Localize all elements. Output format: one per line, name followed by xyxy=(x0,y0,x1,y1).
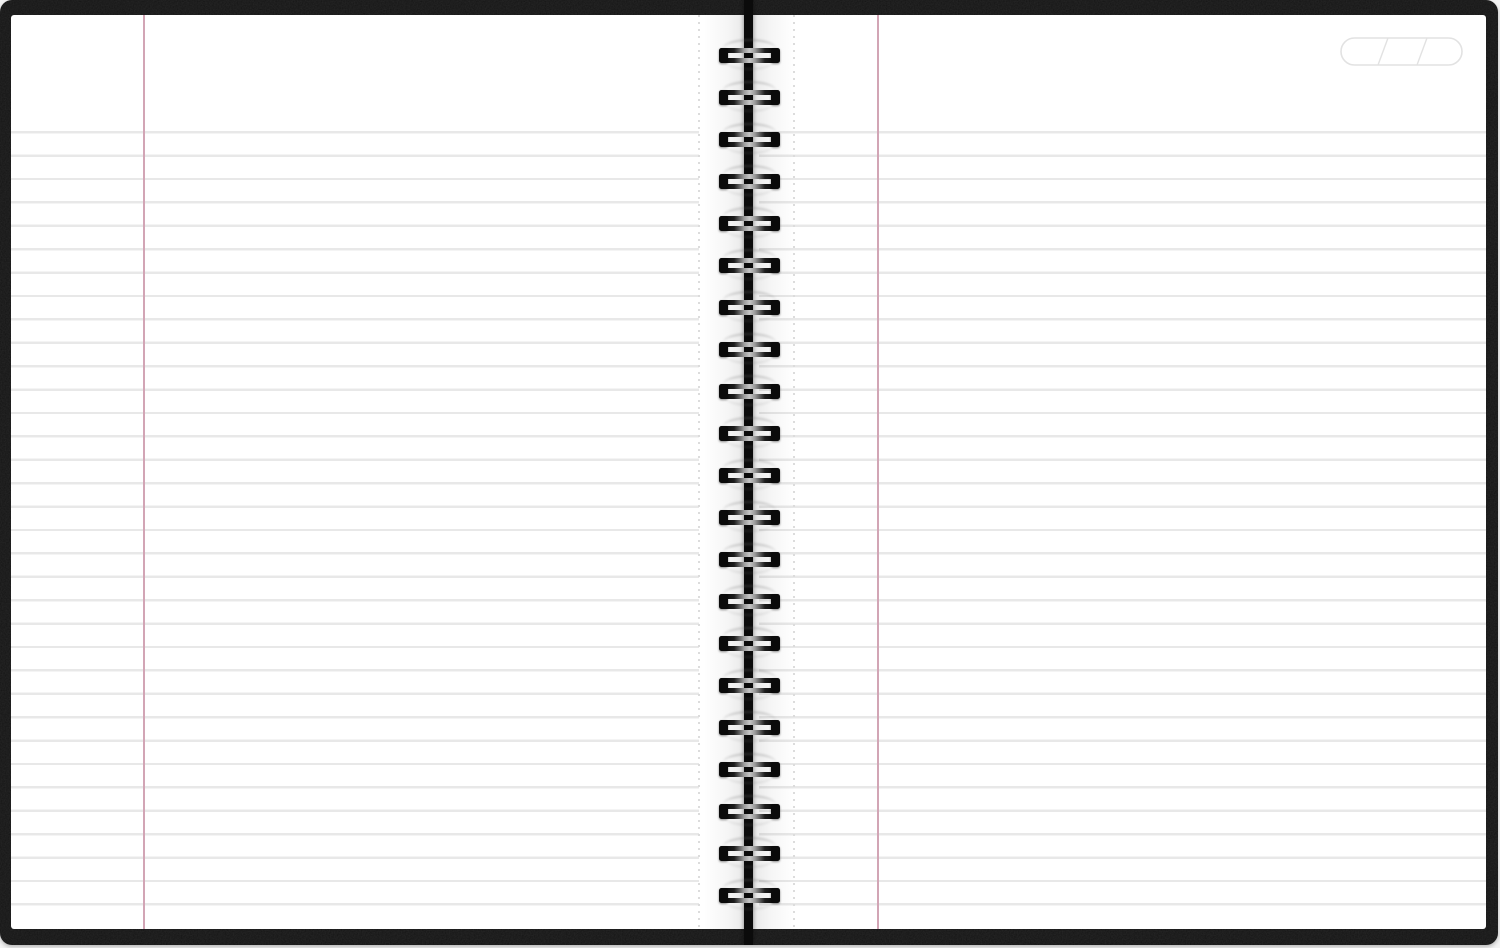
coil-cap-right xyxy=(771,888,780,903)
coil xyxy=(719,846,780,861)
coil-wire-top xyxy=(722,678,777,683)
coil-wire-bottom xyxy=(722,814,777,819)
coil-cap-right xyxy=(771,300,780,315)
coil-cap-left xyxy=(719,174,728,189)
coil-wire-bottom xyxy=(722,898,777,903)
coil-wire-top xyxy=(722,426,777,431)
margin-line-left xyxy=(143,15,145,929)
coil-wire-top xyxy=(722,216,777,221)
coil-cap-right xyxy=(771,174,780,189)
coil-cap-left xyxy=(719,804,728,819)
coil xyxy=(719,762,780,777)
coil-cap-right xyxy=(771,384,780,399)
coil xyxy=(719,594,780,609)
notebook xyxy=(0,0,1498,945)
coil-wire-bottom xyxy=(722,436,777,441)
coil xyxy=(719,216,780,231)
coil xyxy=(719,258,780,273)
coil-cap-left xyxy=(719,888,728,903)
coil xyxy=(719,48,780,63)
coil-wire-top xyxy=(722,762,777,767)
coil-wire-bottom xyxy=(722,268,777,273)
coil-cap-left xyxy=(719,468,728,483)
ruled-lines-right xyxy=(759,131,1486,906)
coil-wire-top xyxy=(722,720,777,725)
coil-cap-left xyxy=(719,594,728,609)
coil-cap-left xyxy=(719,636,728,651)
right-page xyxy=(749,15,1486,929)
coil-wire-bottom xyxy=(722,562,777,567)
coil xyxy=(719,552,780,567)
coil xyxy=(719,468,780,483)
coil-wire-bottom xyxy=(722,730,777,735)
coil-wire-top xyxy=(722,342,777,347)
coil-cap-left xyxy=(719,258,728,273)
perforation-line-right xyxy=(793,15,795,929)
coil-cap-left xyxy=(719,216,728,231)
coil-cap-left xyxy=(719,342,728,357)
coil-wire-top xyxy=(722,174,777,179)
coil-wire-bottom xyxy=(722,688,777,693)
coil-wire-top xyxy=(722,384,777,389)
coil-cap-right xyxy=(771,468,780,483)
coil xyxy=(719,510,780,525)
coil xyxy=(719,174,780,189)
coil-cap-right xyxy=(771,132,780,147)
coil-cap-right xyxy=(771,552,780,567)
coil-wire-top xyxy=(722,804,777,809)
coil-cap-right xyxy=(771,90,780,105)
coil-cap-right xyxy=(771,258,780,273)
coil-wire-bottom xyxy=(722,772,777,777)
coil xyxy=(719,888,780,903)
coil-cap-left xyxy=(719,510,728,525)
coil-wire-top xyxy=(722,846,777,851)
coil-cap-left xyxy=(719,384,728,399)
coil-wire-bottom xyxy=(722,226,777,231)
coil-wire-top xyxy=(722,636,777,641)
coil-wire-bottom xyxy=(722,478,777,483)
coil-wire-top xyxy=(722,510,777,515)
coil-cap-left xyxy=(719,552,728,567)
coil-cap-right xyxy=(771,678,780,693)
coil-wire-top xyxy=(722,888,777,893)
coil-wire-top xyxy=(722,132,777,137)
coil-wire-bottom xyxy=(722,310,777,315)
coil xyxy=(719,636,780,651)
coil-cap-right xyxy=(771,510,780,525)
coil-cap-right xyxy=(771,342,780,357)
coil-cap-left xyxy=(719,90,728,105)
ruled-lines-left xyxy=(11,131,699,906)
coil-wire-bottom xyxy=(722,352,777,357)
coil-cap-right xyxy=(771,48,780,63)
coil xyxy=(719,132,780,147)
left-page xyxy=(11,15,749,929)
coil-cap-left xyxy=(719,846,728,861)
coil-cap-right xyxy=(771,804,780,819)
coil-cap-left xyxy=(719,132,728,147)
coil-wire-top xyxy=(722,90,777,95)
margin-line-right xyxy=(877,15,879,929)
coil-wire-bottom xyxy=(722,142,777,147)
coil-wire-top xyxy=(722,468,777,473)
coil-wire-bottom xyxy=(722,58,777,63)
coil-wire-top xyxy=(722,552,777,557)
coil-cap-right xyxy=(771,762,780,777)
coil-wire-bottom xyxy=(722,520,777,525)
coil-wire-top xyxy=(722,594,777,599)
perforation-line-left xyxy=(698,15,700,929)
coil-wire-bottom xyxy=(722,184,777,189)
coil xyxy=(719,300,780,315)
coil xyxy=(719,804,780,819)
coil-cap-left xyxy=(719,426,728,441)
coil xyxy=(719,384,780,399)
coil-cap-right xyxy=(771,594,780,609)
coil-cap-right xyxy=(771,426,780,441)
coil-wire-bottom xyxy=(722,856,777,861)
corner-stamp-icon xyxy=(1340,37,1463,66)
coil-wire-top xyxy=(722,48,777,53)
coil-cap-left xyxy=(719,678,728,693)
coil xyxy=(719,90,780,105)
coil-cap-right xyxy=(771,846,780,861)
coil xyxy=(719,342,780,357)
coil-wire-bottom xyxy=(722,604,777,609)
coil-wire-bottom xyxy=(722,646,777,651)
coil xyxy=(719,720,780,735)
coil-cap-left xyxy=(719,762,728,777)
coil-wire-bottom xyxy=(722,394,777,399)
coil-cap-right xyxy=(771,216,780,231)
coil-cap-left xyxy=(719,720,728,735)
coil xyxy=(719,678,780,693)
coil-wire-bottom xyxy=(722,100,777,105)
coil-wire-top xyxy=(722,300,777,305)
coil-cap-right xyxy=(771,720,780,735)
coil-wire-top xyxy=(722,258,777,263)
coil-cap-left xyxy=(719,48,728,63)
coil-cap-left xyxy=(719,300,728,315)
coil xyxy=(719,426,780,441)
spiral-binding xyxy=(719,0,780,945)
coil-cap-right xyxy=(771,636,780,651)
